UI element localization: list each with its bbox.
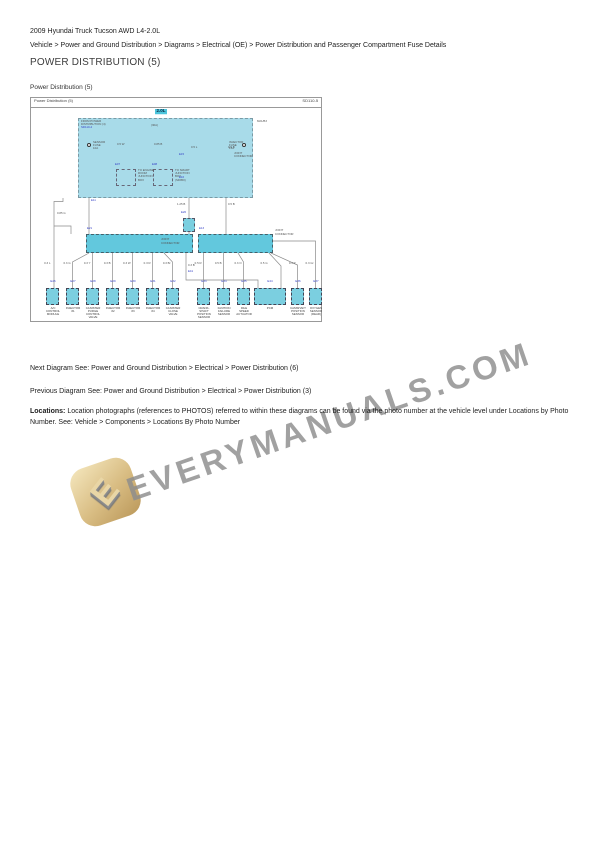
wire-gauge-label: 0.3 Y [80, 262, 91, 265]
fuse-sub-box [116, 169, 136, 186]
wire-gauge-label: 0.5 B [211, 262, 222, 265]
diagram-label: E07 [115, 163, 120, 166]
wire-gauge-label: 0.3 L [40, 262, 51, 265]
diagram-label: 0.5 B [228, 146, 235, 149]
wire-gauge-label: 0.3 Br [160, 262, 171, 265]
diagram-label: CONNECTOR [234, 155, 253, 158]
diagram-label: E08 [152, 163, 157, 166]
diagram-label: E41 [188, 270, 193, 273]
component-caption: OXYGEN SENSOR (REAR) [303, 307, 328, 316]
vehicle-title: 2009 Hyundai Truck Tucson AWD L4-2.0L [30, 28, 160, 35]
diagram-label: E20 [181, 211, 186, 214]
wire-gauge-label: 0.3 Gr [303, 262, 314, 265]
diagram-label: BOX [138, 179, 144, 182]
wire-gauge-label: 0.3 G [60, 262, 71, 265]
wire-gauge-label: 0.3 W [120, 262, 131, 265]
component-caption: CANISTER CLOSE VALVE [160, 307, 185, 316]
diagram-label: 0.5 L [191, 146, 197, 149]
diagram-label: JOINT [275, 229, 283, 232]
component-box [291, 288, 304, 305]
diagram-label: E21 [87, 227, 92, 230]
component-box [309, 288, 322, 305]
diagram-label: JOINT [161, 238, 169, 241]
diagram-label: CONNECTOR [161, 242, 180, 245]
wire-gauge-label: 0.5 G [257, 262, 268, 265]
wire-gauge-label: 0.3 R [140, 262, 151, 265]
engine-variant-tag: 2.0L [155, 109, 167, 114]
wire-gauge-label: 0.3 B [100, 262, 111, 265]
connector-code: E35 [231, 280, 256, 283]
component-box [86, 288, 99, 305]
component-box [166, 288, 179, 305]
component-box [254, 288, 286, 305]
diagram-label: (30A) [151, 124, 158, 127]
wire-gauge-label: 0.3 P [285, 262, 296, 265]
diagram-label: 0.85 G [57, 212, 66, 215]
component-box [106, 288, 119, 305]
diagram-label: 0.85 B [154, 143, 162, 146]
diagram-code: SD110-5 [302, 99, 318, 103]
fuse-sub-box [153, 169, 173, 186]
diagram-label: E13 [199, 227, 204, 230]
connector-code: E32 [160, 280, 185, 283]
locations-text: Location photographs (references to PHOT… [30, 408, 568, 426]
diagram-label: E15 [179, 153, 184, 156]
diagram-label: 1.25 B [177, 203, 185, 206]
connector-code: E44 [258, 280, 283, 283]
diagram-label: 10A [93, 147, 98, 150]
component-caption: PCM [258, 307, 283, 310]
diagram-label: CONNECTOR [275, 233, 294, 236]
logo-letter: E [83, 471, 128, 513]
connector-code: E37 [303, 280, 328, 283]
next-diagram-reference: Next Diagram See: Power and Ground Distr… [30, 364, 590, 375]
component-box [217, 288, 230, 305]
component-box [126, 288, 139, 305]
diagram-label: E11 [91, 199, 96, 202]
diagram-label: E16 [179, 176, 184, 179]
component-caption: IDLE SPEED ACTUATOR [231, 307, 256, 316]
diagram-label: 0.5 W [117, 143, 125, 146]
component-box [146, 288, 159, 305]
component-box [237, 288, 250, 305]
breadcrumb[interactable]: Vehicle > Power and Ground Distribution … [30, 42, 446, 49]
diagram-title: Power Distribution (5) [34, 99, 73, 103]
mid-connector-box [183, 218, 195, 232]
diagram-caption: Power Distribution (5) [30, 84, 93, 91]
diagram-label: M21/B3 [257, 120, 267, 123]
diagram-label: SD110-4 [81, 126, 92, 129]
wire-gauge-label: 0.5 R [191, 262, 202, 265]
wiring-diagram: Power Distribution (5) SD110-5 2.0L [30, 97, 322, 322]
diagram-label: 0.5 B [228, 203, 235, 206]
diagram-title-bar: Power Distribution (5) SD110-5 [31, 98, 321, 108]
junction-box [78, 118, 253, 198]
component-box [46, 288, 59, 305]
page-title: POWER DISTRIBUTION (5) [30, 57, 161, 68]
component-box [197, 288, 210, 305]
wire-gauge-label: 0.3 O [231, 262, 242, 265]
fuse-symbol [87, 143, 91, 147]
previous-diagram-reference: Previous Diagram See: Power and Ground D… [30, 387, 590, 398]
locations-note: Locations: Location photographs (referen… [30, 407, 587, 429]
locations-label: Locations: [30, 408, 65, 415]
component-box [66, 288, 79, 305]
joint-connector-bar-right [198, 234, 273, 253]
